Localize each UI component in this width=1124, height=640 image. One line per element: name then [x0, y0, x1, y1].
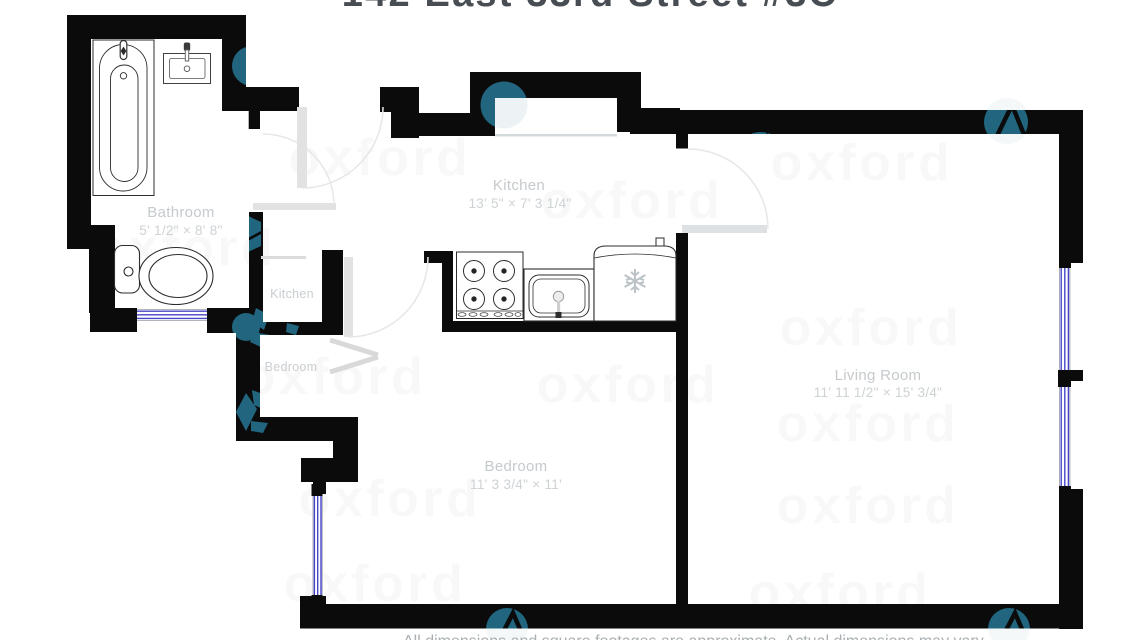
svg-text:Bedroom: Bedroom: [265, 360, 318, 374]
svg-text:oxford: oxford: [777, 477, 960, 535]
svg-text:5' 1/2" × 8' 8": 5' 1/2" × 8' 8": [139, 223, 222, 238]
svg-text:oxford: oxford: [771, 134, 954, 192]
svg-text:oxford: oxford: [537, 356, 720, 414]
svg-text:11' 3 3/4" × 11': 11' 3 3/4" × 11': [470, 477, 562, 492]
svg-text:Living Room: Living Room: [835, 367, 922, 384]
svg-text:Kitchen: Kitchen: [493, 177, 545, 194]
svg-text:oxford: oxford: [777, 395, 960, 453]
svg-text:142 East 33rd Street #3C: 142 East 33rd Street #3C: [342, 0, 838, 15]
svg-text:Bedroom: Bedroom: [485, 458, 548, 475]
svg-text:13' 5" × 7' 3 1/4": 13' 5" × 7' 3 1/4": [468, 196, 571, 211]
svg-text:Kitchen: Kitchen: [270, 287, 314, 301]
svg-text:11' 11 1/2" × 15' 3/4": 11' 11 1/2" × 15' 3/4": [814, 385, 943, 400]
svg-text:oxford: oxford: [780, 299, 963, 357]
svg-text:Bathroom: Bathroom: [147, 204, 214, 221]
svg-text:oxford: oxford: [244, 348, 427, 406]
